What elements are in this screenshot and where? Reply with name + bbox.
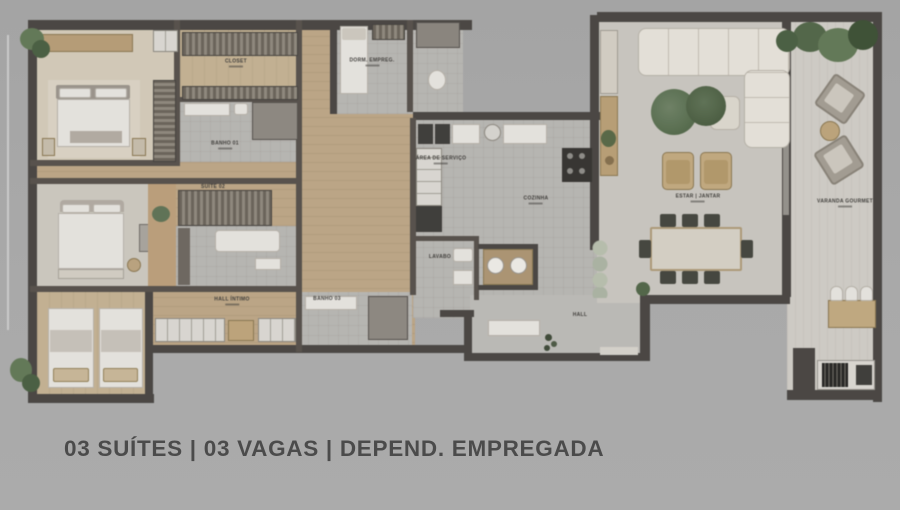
label-lavabo: LAVABO (429, 254, 451, 260)
banho2-vanity (255, 258, 281, 270)
marketing-caption: 03 SUÍTES | 03 VAGAS | DEPEND. EMPREGADA (64, 436, 604, 462)
bench-cushion (860, 286, 873, 301)
label-banho3: BANHO 03 (313, 296, 341, 302)
kitchen-sink-round (484, 124, 501, 141)
dining-chair (682, 214, 698, 227)
closet-wardrobe-top (182, 32, 298, 56)
stove-burner (579, 153, 585, 159)
suite3-bed1-throw (50, 330, 92, 352)
dependencia-pillow (342, 28, 366, 40)
label-area-servico: ÁREA DE SERVIÇO (416, 156, 467, 165)
suite2-pillow (93, 204, 121, 213)
dining-chair (682, 271, 698, 284)
entry-plant (544, 345, 550, 351)
dining-chair (660, 214, 676, 227)
label-hall-entrada: HALL (573, 312, 588, 318)
wall-grill-nook (793, 348, 815, 400)
wall-left-outer (28, 20, 37, 402)
scale-bar (7, 35, 9, 330)
suite3-bed2-pillow (103, 368, 138, 382)
suite2-ottoman (127, 258, 141, 272)
coffee-table-green2 (686, 86, 726, 126)
label-suite2: SUÍTE 02 (201, 184, 225, 190)
suite1-nightstand (42, 138, 55, 156)
wall-dependencia-left (330, 20, 337, 114)
balcony-plant (776, 30, 798, 52)
suite1-wardrobe (153, 80, 176, 162)
sideboard-bowl (605, 156, 614, 165)
suite3-bed1-pillow (53, 368, 89, 382)
suite1-cabinet (153, 30, 178, 52)
suite2-wardrobe (178, 190, 272, 226)
suite3-closet-cells (155, 318, 225, 342)
kitchen-fridge (416, 206, 442, 232)
dependencia-wardrobe (372, 24, 405, 40)
entry-plant (545, 334, 552, 341)
wall-top-right (597, 12, 882, 22)
banho1-shower (252, 102, 298, 140)
lavabo-toilet (453, 248, 473, 262)
dining-chair (704, 271, 720, 284)
banho3-shower (368, 296, 408, 340)
wall-top-left (28, 20, 472, 30)
wall-right-outer (873, 12, 882, 402)
bench-cushion (830, 286, 843, 301)
wc-servico-shower (416, 22, 460, 48)
wall-living-left (590, 15, 599, 250)
sideboard-plant (601, 130, 616, 147)
dining-chair-end (639, 240, 651, 258)
entry-plant (551, 341, 557, 347)
kitchen-counter1 (452, 124, 480, 144)
closet-wardrobe-bottom (182, 86, 298, 100)
kitchen-counter2 (503, 124, 547, 144)
dining-chair-end (741, 240, 753, 258)
wc-basin (487, 257, 504, 274)
suite1-bench (70, 131, 122, 143)
wall-kitchen-top (413, 112, 600, 120)
entry-doormat (600, 347, 638, 355)
suite1-shelf (40, 34, 133, 52)
dining-chair (660, 271, 676, 284)
wall-wc-right (533, 244, 538, 290)
label-estar-jantar: ESTAR | JANTAR (676, 194, 721, 203)
plant-top-left2 (32, 40, 50, 58)
label-banho1: BANHO 01 (211, 141, 239, 150)
kitchen-dryer (435, 124, 450, 144)
wc-servico-sink (428, 70, 446, 90)
plant-bottom-left2 (22, 374, 40, 392)
wall-lavabo-top (413, 236, 479, 241)
banho1-toilet (234, 103, 248, 115)
suite2-plant (152, 206, 170, 222)
grill-grid (822, 363, 848, 387)
living-plant (636, 282, 650, 296)
sofa-right (744, 70, 790, 148)
wall-entry-right (640, 295, 650, 361)
label-cozinha: COZINHA (524, 196, 549, 205)
wall-bottom-living (645, 295, 790, 304)
suite2-foot-throw (58, 269, 124, 279)
wall-bottom-left-wing (145, 345, 472, 353)
balcony-bench (828, 300, 876, 328)
sofa-top (638, 28, 790, 76)
suite1-pillow (95, 88, 127, 98)
living-cabinet (600, 30, 618, 94)
floor-plan: CLOSET BANHO 01 SUÍTE 02 HALL ÍNTIMO BAN… (0, 0, 900, 420)
suite3-closet-cells2 (258, 318, 296, 342)
banho2-counter (178, 228, 190, 285)
dining-chair (704, 214, 720, 227)
suite2-passage (148, 184, 176, 286)
banho2-tub (215, 230, 280, 252)
dining-table (650, 227, 742, 271)
wc-basin (510, 257, 527, 274)
label-varanda: VARANDA GOURMET (817, 199, 873, 208)
wall-bottom-suite3 (28, 394, 154, 403)
wall-corridor (296, 20, 302, 352)
armchair2-cushion (704, 160, 728, 184)
suite1-nightstand (132, 138, 146, 156)
label-closet: CLOSET (225, 59, 247, 68)
wall-suite2-bottom (30, 286, 296, 292)
banho1-vanity (184, 103, 230, 116)
grill-sink (856, 365, 872, 385)
planter-hedge (592, 240, 608, 298)
suite2-pillow (62, 204, 90, 213)
suite3-closet-cabinet (228, 320, 254, 341)
label-dorm-empregada: DORM. EMPREG. (349, 58, 394, 67)
stove-burner (567, 153, 573, 159)
bench-cushion (845, 286, 858, 301)
suite1-pillow (59, 88, 91, 98)
armchair-cushion (666, 160, 690, 184)
lavabo-sink (453, 270, 473, 285)
kitchen-stove (562, 148, 592, 182)
wall-dependencia-divider (407, 20, 413, 112)
suite3-bed2-throw (101, 330, 141, 352)
kitchen-washer (418, 124, 433, 144)
wall-wc-bottom (478, 285, 538, 290)
stove-burner (579, 168, 585, 174)
stove-burner (567, 168, 573, 174)
balcony-plant (848, 20, 878, 50)
label-hall-intimo: HALL ÍNTIMO (214, 297, 249, 306)
entry-console (488, 320, 540, 336)
suite2-bed (58, 213, 124, 269)
